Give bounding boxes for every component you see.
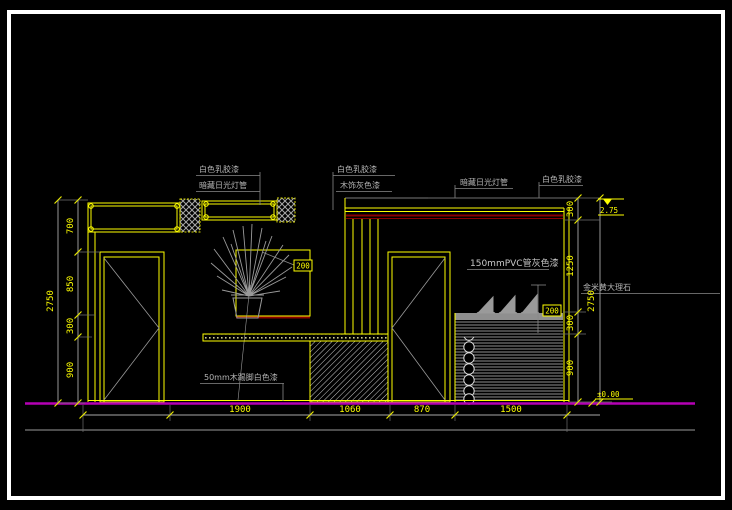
level-floor-text: ±0.00 (597, 390, 620, 399)
label-top-mid-wood: 木饰灰色漆 (340, 180, 380, 190)
dim-bottom-870: 870 (414, 405, 430, 415)
ceiling-hatch-block-left (180, 199, 200, 232)
dim-left-850: 850 (66, 276, 76, 292)
label-top-right-paint: 白色乳胶漆 (542, 174, 582, 184)
dim-bottom-1900: 1900 (229, 405, 251, 415)
canvas-background (0, 0, 732, 510)
dim-right-overall: 2750 (587, 290, 597, 312)
dim-right-300b: 300 (566, 315, 576, 331)
label-top-right-light: 暗藏日光灯管 (460, 177, 508, 187)
level-ceiling-text: 2.75 (600, 206, 618, 215)
label-pvc-pipe: 150mmPVC管灰色漆 (470, 257, 559, 269)
dim-right-300a: 300 (566, 201, 576, 217)
sphere-column (464, 337, 474, 404)
dim-left-700: 700 (66, 218, 76, 234)
label-skirting: 50mm木踢脚白色漆 (204, 372, 278, 382)
counter-top (203, 334, 388, 341)
dim-right-1250: 1250 (566, 255, 576, 277)
dim-left-900: 900 (66, 362, 76, 378)
dim-bottom-1060: 1060 (339, 405, 361, 415)
dim-left-300: 300 (66, 318, 76, 334)
ledge-depth-text: 200 (545, 307, 559, 316)
label-top-mid-paint: 白色乳胶漆 (337, 164, 377, 174)
cad-elevation-drawing: 200 200 (0, 0, 732, 510)
label-top-left-paint: 白色乳胶漆 (199, 164, 239, 174)
label-top-left-light: 暗藏日光灯管 (199, 180, 247, 190)
dim-bottom-1500: 1500 (500, 405, 522, 415)
dim-right-900: 900 (566, 360, 576, 376)
ceiling-hatch-block-mid (277, 198, 295, 222)
niche-depth-text: 200 (296, 262, 310, 271)
dim-left-overall: 2750 (46, 290, 56, 312)
cad-viewport: 200 200 (0, 0, 732, 510)
cabinet-section-hatch (310, 341, 388, 402)
